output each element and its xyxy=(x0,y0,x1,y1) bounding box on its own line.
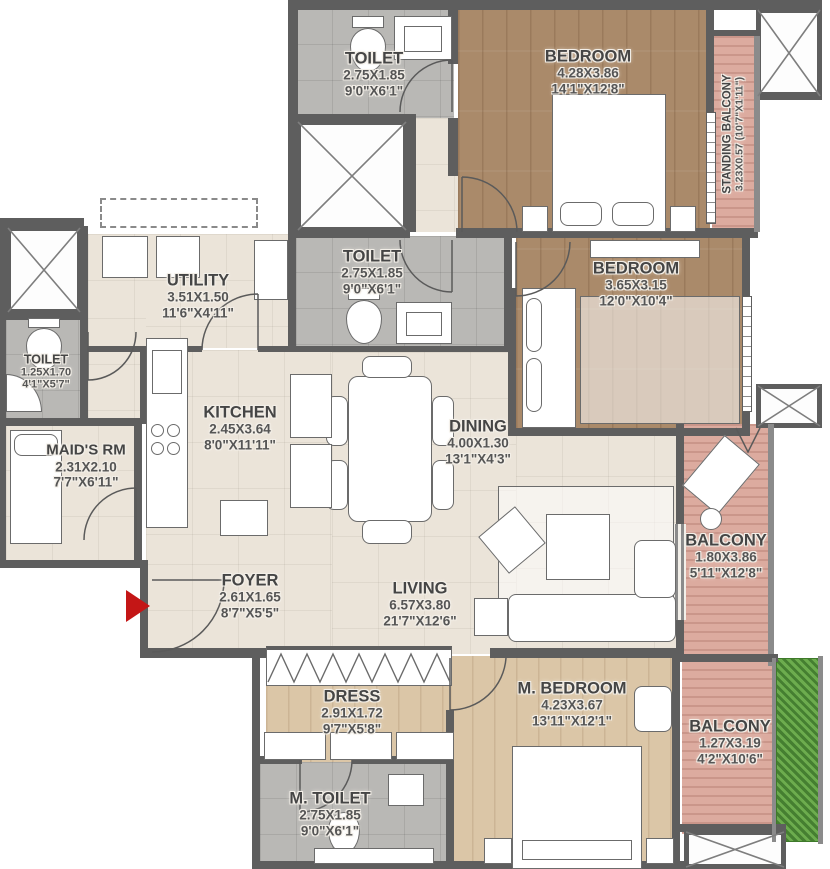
room-label-maids-room: MAID'S RM 2.31X2.10 7'7"X6'11" xyxy=(46,442,125,489)
pillow xyxy=(526,298,542,352)
hob-burner xyxy=(151,442,164,455)
dresser xyxy=(590,240,700,258)
sofa-chaise xyxy=(634,540,676,598)
window xyxy=(742,296,752,412)
nightstand xyxy=(522,206,548,232)
planter-edge xyxy=(772,658,776,842)
washing-machine xyxy=(102,236,148,278)
washbasin-counter xyxy=(314,848,434,864)
wall-segment xyxy=(712,30,756,36)
chair xyxy=(362,520,412,544)
room-label-kitchen: KITCHEN 2.45X3.64 8'0"X11'11" xyxy=(203,404,276,453)
washbasin xyxy=(404,26,442,52)
wall-segment xyxy=(676,654,778,662)
bed-bench xyxy=(522,840,632,860)
wardrobe xyxy=(266,646,452,686)
cabinet xyxy=(290,444,332,508)
wall-segment xyxy=(296,114,414,122)
side-table xyxy=(474,598,508,636)
planter-edge xyxy=(818,656,823,844)
wall-segment xyxy=(756,92,822,100)
room-label-toilet-mid: TOILET 2.75X1.85 9'0"X6'1" xyxy=(341,248,403,297)
room-label-living: LIVING 6.57X3.80 21'7"X12'6" xyxy=(383,580,456,629)
shaft-top-right xyxy=(756,8,822,98)
shaft-bottom-right xyxy=(684,830,786,869)
wall-segment xyxy=(134,424,142,564)
balcony-rail xyxy=(768,424,774,666)
nightstand xyxy=(670,206,696,232)
wall-segment xyxy=(288,228,410,238)
duct-dashed-outline xyxy=(100,198,258,228)
room-label-m-toilet: M. TOILET 2.75X1.85 9'0"X6'1" xyxy=(289,790,370,839)
rug xyxy=(580,296,740,424)
closet xyxy=(396,732,454,760)
wall-segment xyxy=(288,226,296,352)
room-label-utility: UTILITY 3.51X1.50 11'6"X4'11" xyxy=(162,272,234,321)
washbasin xyxy=(406,312,442,336)
kitchen-sink xyxy=(152,350,182,394)
window xyxy=(706,112,716,224)
room-label-dress: DRESS 2.91X1.72 9'7"X5'8" xyxy=(321,688,383,737)
fridge xyxy=(290,374,332,438)
pillow xyxy=(612,202,654,226)
shower xyxy=(388,774,424,806)
wall-segment xyxy=(288,0,822,10)
room-label-toilet-left: TOILET 1.25X1.70 4'1"X5'7" xyxy=(21,353,71,392)
sofa xyxy=(508,594,676,642)
wall-segment xyxy=(676,424,684,524)
balcony-table xyxy=(700,508,722,530)
wall-segment xyxy=(140,648,268,658)
nightstand xyxy=(646,838,674,864)
wall-segment xyxy=(448,118,458,176)
shaft-top xyxy=(296,120,408,232)
room-label-foyer: FOYER 2.61X1.65 8'7"X5'5" xyxy=(219,572,281,621)
wall-segment xyxy=(508,428,750,436)
wall-segment xyxy=(406,114,416,232)
chair xyxy=(432,460,454,510)
wc-tank xyxy=(352,16,384,28)
sliding-door-track xyxy=(681,524,684,620)
planter-strip xyxy=(776,658,820,842)
room-label-toilet-top: TOILET 2.75X1.85 9'0"X6'1" xyxy=(343,50,405,99)
balcony-rail xyxy=(754,36,760,232)
hob-burner xyxy=(167,424,180,437)
kitchen-island xyxy=(220,500,268,536)
room-label-bedroom-1: BEDROOM 4.28X3.86 14'1"X12'8" xyxy=(545,48,631,97)
shaft-right xyxy=(756,384,822,428)
closet xyxy=(264,732,326,760)
wall-segment xyxy=(0,560,148,568)
wc-tank xyxy=(28,318,60,328)
hob-burner xyxy=(151,424,164,437)
wall-segment xyxy=(0,218,84,226)
wall-segment xyxy=(296,346,514,352)
floor-plan: TOILET 2.75X1.85 9'0"X6'1" BEDROOM 4.28X… xyxy=(0,0,830,869)
wall-segment xyxy=(80,226,88,424)
shaft-left xyxy=(6,226,82,314)
room-label-balcony-right: BALCONY 1.80X3.86 5'11"X12'8" xyxy=(685,532,767,581)
entry-arrow-icon xyxy=(126,590,150,622)
wall-segment xyxy=(508,288,516,436)
hob-burner xyxy=(167,442,180,455)
passage-floor xyxy=(88,318,146,424)
room-label-standing-balcony: STANDING BALCONY 3.23X0.57 (10'7"X1'11") xyxy=(722,74,747,193)
dining-table xyxy=(348,376,432,522)
room-label-balcony-bottom: BALCONY 1.27X3.19 4'2"X10'6" xyxy=(689,718,771,767)
pillow xyxy=(560,202,602,226)
chair xyxy=(362,356,412,378)
wall-segment xyxy=(676,824,786,832)
nightstand xyxy=(484,838,512,864)
room-label-m-bedroom: M. BEDROOM 4.23X3.67 13'11"X12'1" xyxy=(517,680,626,729)
wall-segment xyxy=(706,8,714,112)
coffee-table xyxy=(546,514,610,580)
armchair xyxy=(634,686,672,732)
pillow xyxy=(526,358,542,412)
wall-segment xyxy=(0,418,140,426)
room-label-bedroom-2: BEDROOM 3.65X3.15 12'0"X10'4" xyxy=(593,260,679,309)
utility-sink xyxy=(254,240,288,300)
room-label-dining: DINING 4.00X1.30 13'1"X4'3" xyxy=(445,418,511,467)
wall-segment xyxy=(490,648,680,658)
